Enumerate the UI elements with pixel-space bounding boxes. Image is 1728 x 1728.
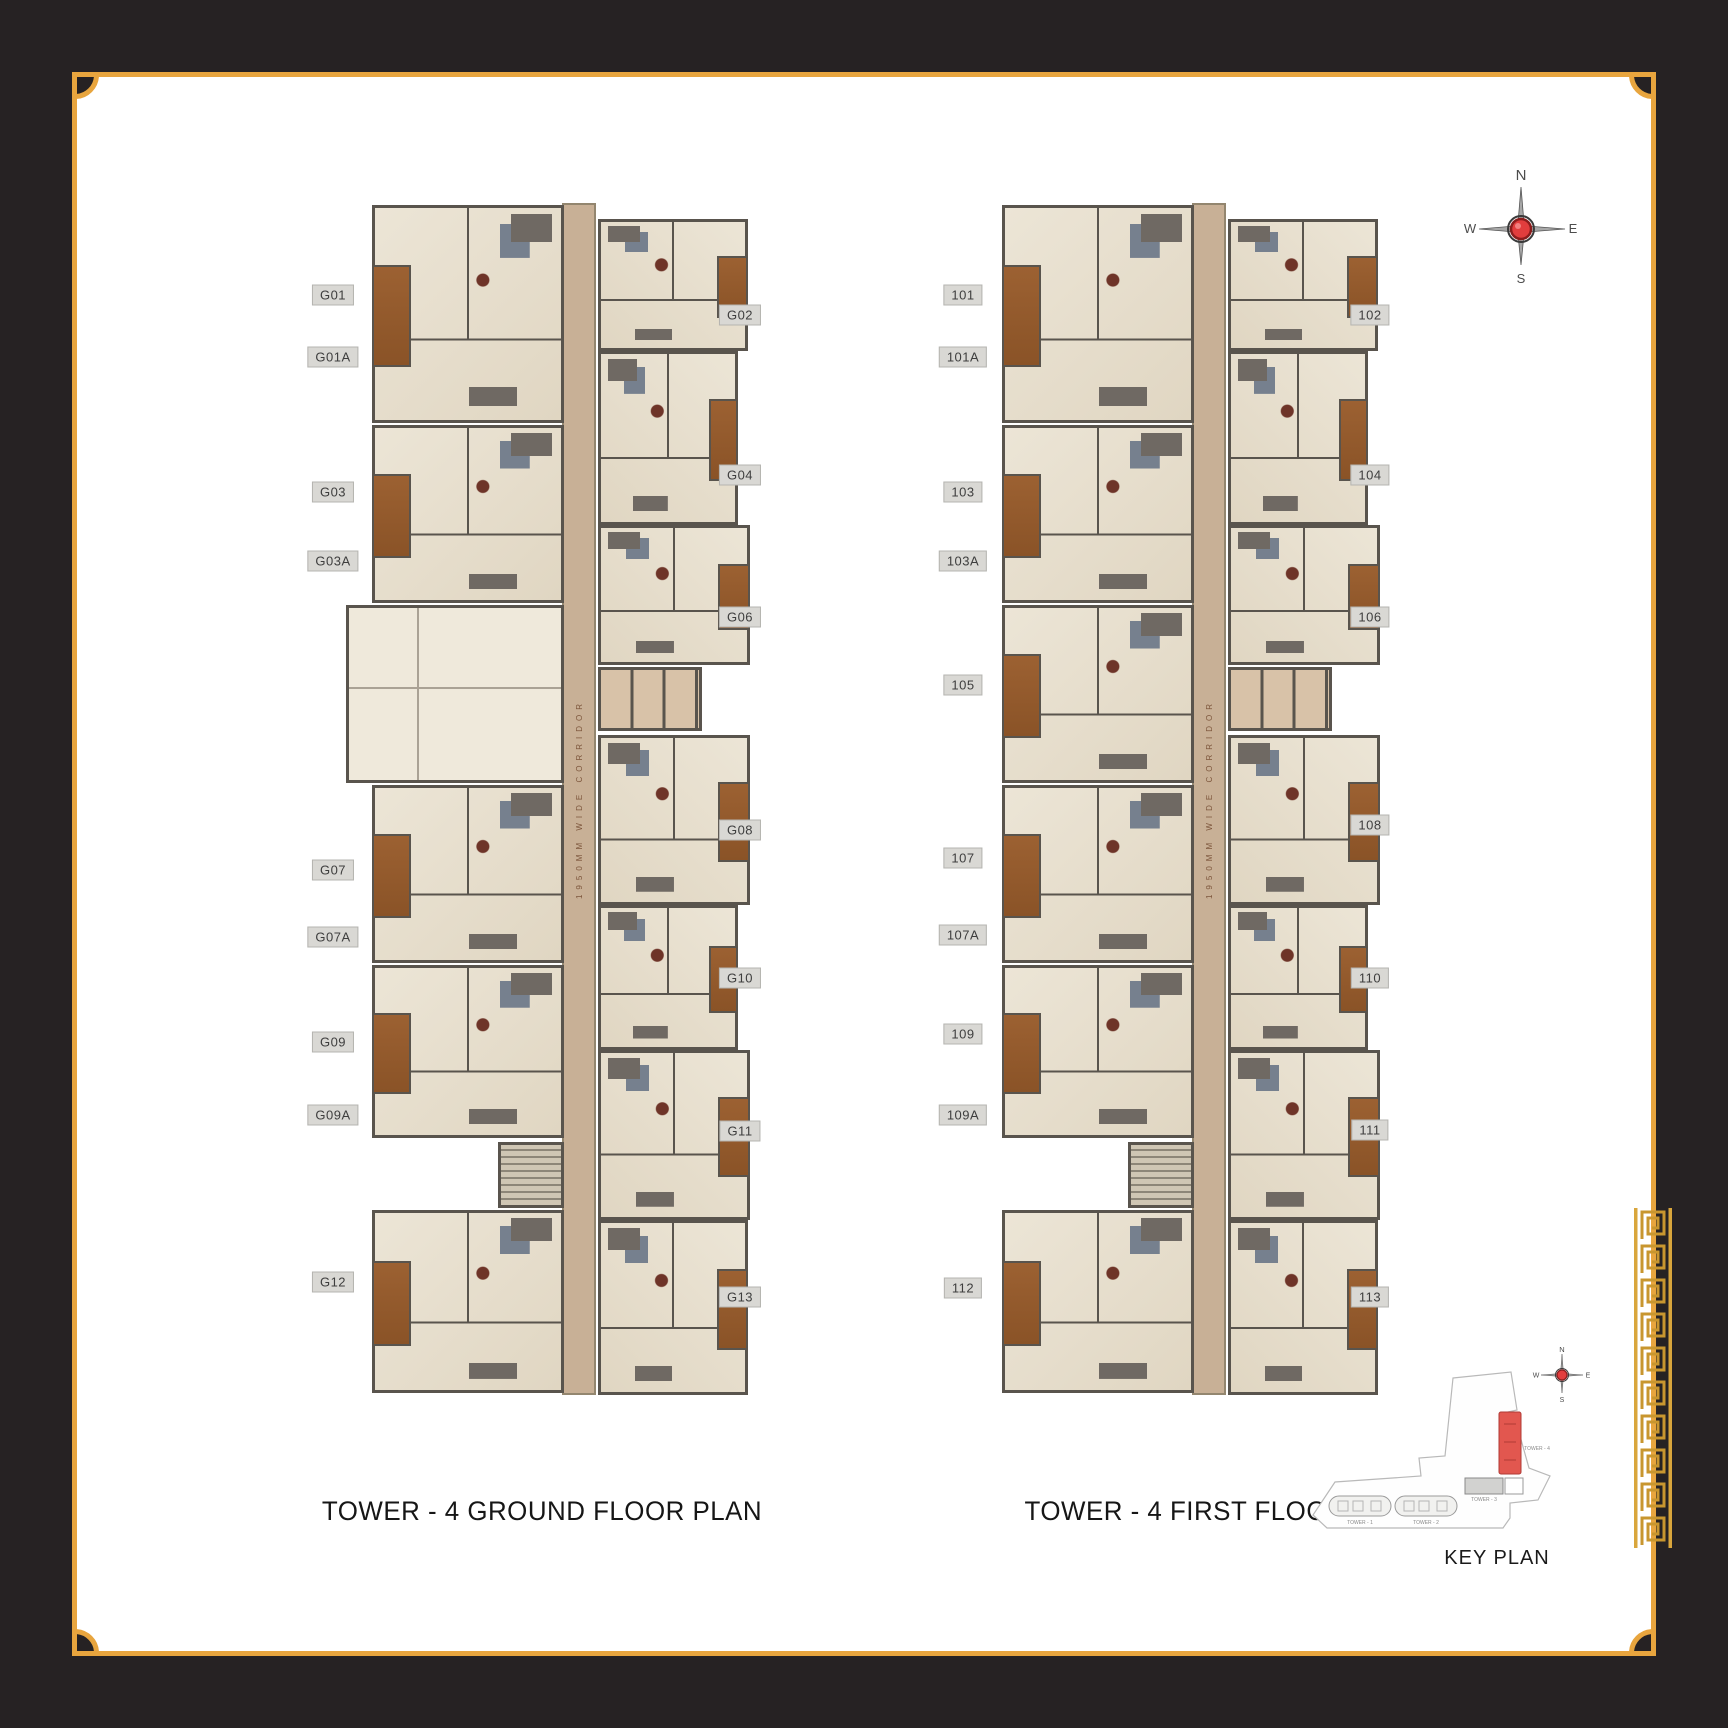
compass-s: S bbox=[1560, 1397, 1565, 1404]
unit-label-111: 111 bbox=[1351, 1120, 1388, 1141]
apartment-block bbox=[1002, 785, 1194, 963]
unit-label-G07A: G07A bbox=[307, 927, 358, 948]
corner-notch-bottom-right bbox=[1629, 1629, 1656, 1656]
unit-label-G06: G06 bbox=[719, 607, 761, 628]
corner-notch-top-left bbox=[72, 72, 99, 99]
unit-label-G03A: G03A bbox=[307, 551, 358, 572]
corridor-ground: 1950MM WIDE CORRIDOR bbox=[562, 203, 596, 1395]
compass-e: E bbox=[1569, 221, 1578, 236]
apartment-block bbox=[1002, 425, 1194, 603]
unit-label-G01: G01 bbox=[312, 285, 354, 306]
unit-label-101: 101 bbox=[943, 285, 982, 306]
greek-key-ornament bbox=[1632, 1208, 1674, 1548]
compass-s: S bbox=[1517, 271, 1526, 286]
key-plan-title: KEY PLAN bbox=[1367, 1547, 1627, 1570]
compass-w: W bbox=[1464, 221, 1477, 236]
unit-labels-left: 101101A103103A105107107A109109A112 bbox=[928, 197, 998, 1407]
unit-label-G01A: G01A bbox=[307, 347, 358, 368]
compass-w: W bbox=[1533, 1373, 1540, 1380]
keyplan-tower2-label: TOWER - 2 bbox=[1413, 1520, 1439, 1526]
staircase-block bbox=[1128, 1142, 1194, 1208]
unit-label-G10: G10 bbox=[719, 968, 761, 989]
apartment-block bbox=[372, 425, 564, 603]
unit-label-110: 110 bbox=[1351, 968, 1389, 989]
unit-label-G07: G07 bbox=[312, 860, 354, 881]
sheet: 1950MM WIDE CORRIDOR G01G01AG03G03AG07G0… bbox=[72, 72, 1656, 1656]
apartment-block bbox=[1002, 205, 1194, 423]
unit-label-102: 102 bbox=[1350, 305, 1389, 326]
corner-notch-bottom-left bbox=[72, 1629, 99, 1656]
unit-label-109A: 109A bbox=[939, 1105, 987, 1126]
staircase-block bbox=[498, 1142, 564, 1208]
lift-bank bbox=[1228, 667, 1332, 731]
unit-label-105: 105 bbox=[943, 675, 982, 696]
unit-label-107A: 107A bbox=[939, 925, 987, 946]
unit-label-G13: G13 bbox=[719, 1287, 761, 1308]
tower-4-highlight bbox=[1499, 1412, 1521, 1474]
unit-label-G04: G04 bbox=[719, 465, 761, 486]
apartment-block bbox=[372, 1210, 564, 1393]
compass-e: E bbox=[1586, 1373, 1591, 1380]
keyplan-tower4-label: TOWER - 4 bbox=[1524, 1446, 1550, 1452]
corridor-label: 1950MM WIDE CORRIDOR bbox=[575, 699, 584, 899]
brochure-frame: 1950MM WIDE CORRIDOR G01G01AG03G03AG07G0… bbox=[0, 0, 1728, 1728]
corridor-first: 1950MM WIDE CORRIDOR bbox=[1192, 203, 1226, 1395]
unit-label-106: 106 bbox=[1350, 607, 1389, 628]
unit-label-G09A: G09A bbox=[307, 1105, 358, 1126]
compass-n: N bbox=[1516, 167, 1527, 184]
compass-n: N bbox=[1559, 1345, 1564, 1354]
clubhouse-block bbox=[346, 605, 564, 783]
compass-icon-small: N S E W bbox=[1530, 1343, 1594, 1407]
apartment-block bbox=[372, 205, 564, 423]
unit-label-113: 113 bbox=[1351, 1287, 1389, 1308]
apartment-block bbox=[1002, 605, 1194, 783]
apartment-block bbox=[372, 785, 564, 963]
unit-label-103A: 103A bbox=[939, 551, 987, 572]
compass-icon: N S E W bbox=[1455, 163, 1587, 295]
keyplan-tower1-label: TOWER - 1 bbox=[1347, 1520, 1373, 1526]
corridor-label: 1950MM WIDE CORRIDOR bbox=[1205, 699, 1214, 899]
unit-label-G09: G09 bbox=[312, 1032, 354, 1053]
lift-bank bbox=[598, 667, 702, 731]
unit-label-112: 112 bbox=[944, 1278, 982, 1299]
unit-label-104: 104 bbox=[1350, 465, 1389, 486]
unit-label-109: 109 bbox=[943, 1024, 982, 1045]
unit-label-G08: G08 bbox=[719, 820, 761, 841]
unit-label-G12: G12 bbox=[312, 1272, 354, 1293]
unit-label-G03: G03 bbox=[312, 482, 354, 503]
unit-labels-left: G01G01AG03G03AG07G07AG09G09AG12 bbox=[298, 197, 368, 1407]
first-floor-plan: 1950MM WIDE CORRIDOR 101101A103103A10510… bbox=[990, 197, 1410, 1407]
unit-label-G11: G11 bbox=[719, 1121, 760, 1142]
unit-label-G02: G02 bbox=[719, 305, 761, 326]
apartment-block bbox=[372, 965, 564, 1138]
unit-label-108: 108 bbox=[1350, 815, 1389, 836]
unit-labels-right: G02G04G06G08G10G11G13 bbox=[705, 197, 775, 1407]
unit-label-103: 103 bbox=[943, 482, 982, 503]
unit-labels-right: 102104106108110111113 bbox=[1335, 197, 1405, 1407]
keyplan-tower3-label: TOWER - 3 bbox=[1471, 1497, 1497, 1503]
ground-floor-plan: 1950MM WIDE CORRIDOR G01G01AG03G03AG07G0… bbox=[360, 197, 780, 1407]
unit-label-101A: 101A bbox=[939, 347, 987, 368]
unit-label-107: 107 bbox=[943, 848, 982, 869]
ground-floor-title: TOWER - 4 GROUND FLOOR PLAN bbox=[312, 1496, 773, 1527]
apartment-block bbox=[1002, 965, 1194, 1138]
apartment-block bbox=[1002, 1210, 1194, 1393]
corner-notch-top-right bbox=[1629, 72, 1656, 99]
